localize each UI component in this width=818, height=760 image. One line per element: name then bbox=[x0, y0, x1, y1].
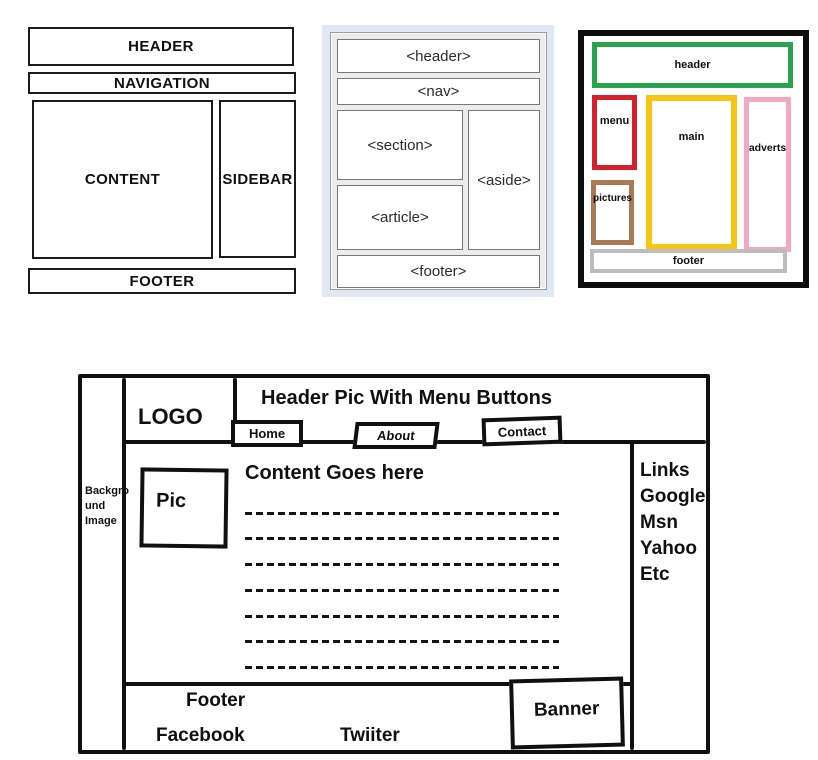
basic-footer-box: FOOTER bbox=[28, 268, 296, 294]
basic-header-box: HEADER bbox=[28, 27, 294, 66]
twitter-label: Twiiter bbox=[340, 725, 400, 747]
basic-footer-label: FOOTER bbox=[130, 273, 195, 290]
semantic-nav-box: <nav> bbox=[337, 78, 540, 105]
html5-semantic-diagram: <header> <nav> <section> <aside> <articl… bbox=[322, 25, 554, 297]
semantic-header-box: <header> bbox=[337, 39, 540, 73]
banner-box: Banner bbox=[509, 677, 625, 750]
content-dashed-line bbox=[245, 615, 559, 618]
links-column-divider bbox=[630, 440, 634, 750]
content-dashed-line bbox=[245, 537, 559, 540]
footer-label: Footer bbox=[186, 690, 245, 712]
basic-header-label: HEADER bbox=[128, 38, 194, 55]
about-button: About bbox=[352, 422, 439, 449]
links-list-title: Links bbox=[640, 458, 705, 484]
contact-button: Contact bbox=[482, 416, 563, 447]
semantic-article-box: <article> bbox=[337, 185, 463, 250]
colored-main-label: main bbox=[679, 131, 705, 143]
semantic-footer-box: <footer> bbox=[337, 255, 540, 288]
layout-diagrams-canvas: HEADER NAVIGATION CONTENT SIDEBAR FOOTER… bbox=[0, 0, 818, 760]
semantic-page-container: <header> <nav> <section> <aside> <articl… bbox=[330, 32, 547, 290]
colored-layout-diagram: header menu main adverts pictures footer bbox=[578, 30, 809, 288]
about-button-label: About bbox=[376, 428, 415, 443]
colored-adverts-label: adverts bbox=[749, 142, 786, 154]
hand-drawn-wireframe: Backgro und Image LOGO Header Pic With M… bbox=[78, 374, 710, 754]
background-image-label: Backgro und Image bbox=[85, 484, 129, 529]
facebook-label: Facebook bbox=[156, 725, 245, 747]
logo-text: LOGO bbox=[138, 404, 203, 430]
semantic-section-label: <section> bbox=[367, 137, 432, 154]
home-button-label: Home bbox=[249, 426, 285, 441]
semantic-section-box: <section> bbox=[337, 110, 463, 180]
basic-content-box: CONTENT bbox=[32, 100, 213, 259]
colored-pictures-label: pictures bbox=[593, 193, 632, 204]
colored-menu-label: menu bbox=[600, 115, 629, 127]
wireframe-basic-diagram: HEADER NAVIGATION CONTENT SIDEBAR FOOTER bbox=[28, 27, 296, 294]
colored-footer-label: footer bbox=[673, 255, 704, 267]
links-list: Links Google Msn Yahoo Etc bbox=[640, 458, 705, 588]
content-dashed-line bbox=[245, 666, 559, 669]
pic-label: Pic bbox=[144, 471, 187, 513]
link-item-google: Google bbox=[640, 484, 705, 510]
content-dashed-line bbox=[245, 589, 559, 592]
colored-menu-box: menu bbox=[592, 95, 637, 170]
colored-header-label: header bbox=[674, 59, 710, 71]
colored-main-box: main bbox=[646, 95, 737, 250]
basic-sidebar-label: SIDEBAR bbox=[222, 171, 292, 188]
semantic-article-label: <article> bbox=[371, 209, 429, 226]
content-heading: Content Goes here bbox=[245, 462, 424, 485]
colored-pictures-box: pictures bbox=[591, 180, 634, 245]
semantic-footer-label: <footer> bbox=[411, 263, 467, 280]
content-dashed-line bbox=[245, 563, 559, 566]
link-item-etc: Etc bbox=[640, 562, 705, 588]
link-item-yahoo: Yahoo bbox=[640, 536, 705, 562]
content-dashed-line bbox=[245, 512, 559, 515]
colored-footer-box: footer bbox=[590, 249, 787, 273]
content-dashed-line bbox=[245, 640, 559, 643]
basic-navigation-box: NAVIGATION bbox=[28, 72, 296, 94]
left-column-divider bbox=[122, 378, 126, 750]
semantic-aside-box: <aside> bbox=[468, 110, 540, 250]
basic-sidebar-box: SIDEBAR bbox=[219, 100, 296, 258]
colored-header-box: header bbox=[592, 42, 793, 88]
contact-button-label: Contact bbox=[498, 423, 547, 440]
basic-content-label: CONTENT bbox=[85, 171, 160, 188]
colored-adverts-box: adverts bbox=[744, 97, 791, 252]
semantic-aside-label: <aside> bbox=[477, 172, 530, 189]
banner-label: Banner bbox=[513, 681, 599, 722]
semantic-header-label: <header> bbox=[406, 48, 470, 65]
semantic-nav-label: <nav> bbox=[418, 83, 460, 100]
header-title: Header Pic With Menu Buttons bbox=[261, 387, 552, 410]
link-item-msn: Msn bbox=[640, 510, 705, 536]
pic-placeholder-box: Pic bbox=[139, 467, 228, 548]
basic-navigation-label: NAVIGATION bbox=[114, 75, 210, 92]
home-button: Home bbox=[231, 420, 303, 447]
